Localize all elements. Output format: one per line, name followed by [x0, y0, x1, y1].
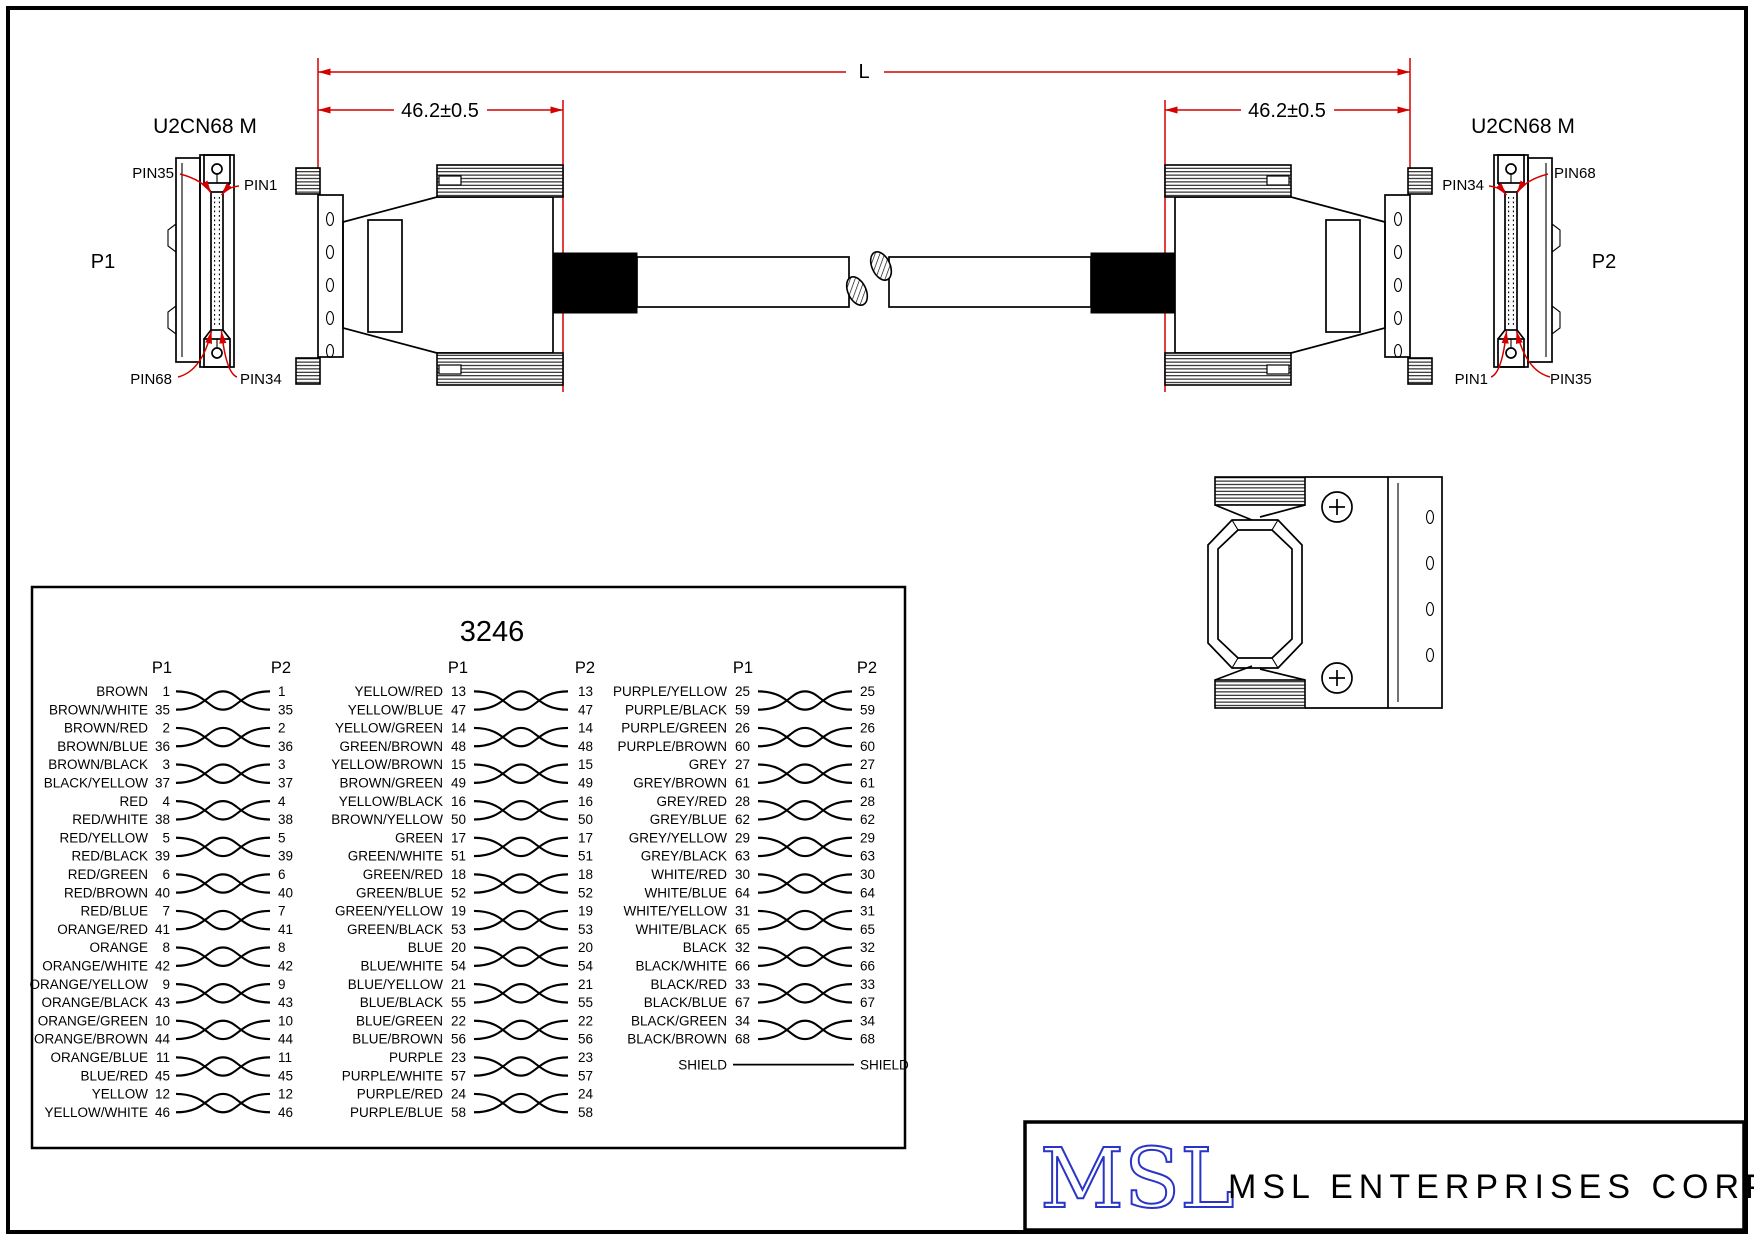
wire-pin-p2: 65	[860, 922, 875, 937]
twisted-pair-icon	[474, 801, 568, 819]
twisted-pair-icon	[176, 691, 270, 709]
wire-pin-p2: 47	[578, 702, 593, 717]
wire-pin-p1: 62	[735, 812, 750, 827]
dim-left-label: 46.2±0.5	[401, 100, 479, 122]
wire-pin-p1: 45	[155, 1068, 170, 1083]
connector-detail-view	[1208, 477, 1442, 708]
cable-break-icon	[867, 249, 896, 284]
wire-name: GREEN/WHITE	[348, 849, 443, 864]
wire-pin-p2: 41	[278, 922, 293, 937]
wire-name: YELLOW/BLACK	[339, 794, 443, 809]
wire-name: YELLOW/WHITE	[44, 1105, 148, 1120]
wire-name: BLACK	[683, 940, 727, 955]
wire-name: YELLOW/BROWN	[331, 757, 443, 772]
wire-pin-p1: 54	[451, 959, 467, 974]
wire-pin-p1: 17	[451, 830, 466, 845]
wire-name: RED/BLACK	[71, 849, 148, 864]
twisted-pair-icon	[758, 984, 852, 1002]
wire-pin-p1: 65	[735, 922, 750, 937]
wire-pin-p2: 25	[860, 684, 875, 699]
wire-name: GREEN/BROWN	[339, 739, 443, 754]
twisted-pair-icon	[758, 765, 852, 783]
wire-pin-p2: 35	[278, 702, 293, 717]
wire-pin-p2: 7	[278, 904, 286, 919]
wire-name: ORANGE/BROWN	[34, 1032, 148, 1047]
twisted-pair-icon	[176, 801, 270, 819]
wiring-table-title: 3246	[460, 616, 525, 648]
wire-pin-p2: 40	[278, 885, 293, 900]
schematic-canvas: L 46.2±0.5 46.2±0.5 U2CN68 M U2CN68 M P1…	[0, 0, 1754, 1240]
wire-pin-p1: 67	[735, 995, 750, 1010]
wire-rows: BROWN11BROWN/WHITE3535BROWN/RED22BROWN/B…	[29, 684, 909, 1120]
company-name: MSL ENTERPRISES CORP.	[1228, 1168, 1754, 1206]
wiring-table: 3246 P1 P2 P1 P2 P1 P2 BROWN11BROWN/WHIT…	[29, 587, 909, 1148]
wire-pin-p1: 50	[451, 812, 466, 827]
twisted-pair-icon	[474, 911, 568, 929]
wire-name: ORANGE	[89, 940, 148, 955]
wire-pin-p1: 59	[735, 702, 750, 717]
wire-pin-p1: 64	[735, 885, 751, 900]
dim-overall-label: L	[858, 61, 869, 83]
p2-pin-bottom-right: PIN35	[1550, 371, 1592, 388]
wire-pin-p2: 14	[578, 721, 594, 736]
wire-pin-p1: 18	[451, 867, 466, 882]
connector-model-left: U2CN68 M	[153, 115, 257, 138]
twisted-pair-icon	[758, 1021, 852, 1039]
wire-pin-p2: 46	[278, 1105, 293, 1120]
wire-pin-p2: 30	[860, 867, 875, 882]
wire-name: GREY/BLUE	[650, 812, 727, 827]
dimension-lines	[318, 58, 1410, 392]
shield-label-right: SHIELD	[860, 1057, 909, 1072]
wire-pin-p1: 4	[162, 794, 170, 809]
wire-pin-p2: 5	[278, 830, 286, 845]
wire-pin-p1: 2	[162, 721, 170, 736]
wire-pin-p2: 16	[578, 794, 593, 809]
wire-pin-p1: 14	[451, 721, 467, 736]
wire-pin-p1: 37	[155, 776, 170, 791]
wire-name: RED/YELLOW	[59, 830, 148, 845]
wire-pin-p2: 54	[578, 959, 594, 974]
wire-pin-p2: 55	[578, 995, 593, 1010]
wire-pin-p1: 22	[451, 1013, 466, 1028]
wire-pin-p1: 53	[451, 922, 466, 937]
wire-pin-p2: 21	[578, 977, 593, 992]
p2-pin-bottom-left: PIN1	[1455, 371, 1488, 388]
twisted-pair-icon	[758, 948, 852, 966]
wire-pin-p2: 23	[578, 1050, 593, 1065]
twisted-pair-icon	[176, 948, 270, 966]
wire-name: GREEN	[395, 830, 443, 845]
wire-pin-p1: 16	[451, 794, 466, 809]
wire-pin-p2: 67	[860, 995, 875, 1010]
wire-pin-p2: 33	[860, 977, 875, 992]
wire-pin-p2: 56	[578, 1032, 593, 1047]
wire-pin-p1: 42	[155, 959, 170, 974]
connector-model-right: U2CN68 M	[1471, 115, 1575, 138]
wire-name: GREY/BROWN	[633, 776, 727, 791]
wire-name: WHITE/YELLOW	[623, 904, 727, 919]
wire-name: GREEN/RED	[363, 867, 444, 882]
wire-pin-p1: 49	[451, 776, 466, 791]
wire-pin-p2: 1	[278, 684, 286, 699]
col-header-p1: P1	[733, 659, 753, 677]
title-block: MSL MSL ENTERPRISES CORP.	[1025, 1122, 1754, 1230]
wire-pin-p1: 55	[451, 995, 466, 1010]
wire-pin-p2: 8	[278, 940, 286, 955]
cable-break-icon	[843, 274, 872, 309]
wire-name: BROWN/RED	[64, 721, 148, 736]
drawing-sheet: L 46.2±0.5 46.2±0.5 U2CN68 M U2CN68 M P1…	[0, 0, 1754, 1240]
wire-name: RED/WHITE	[72, 812, 148, 827]
wire-pin-p2: 12	[278, 1087, 293, 1102]
wire-name: PURPLE/YELLOW	[613, 684, 727, 699]
twisted-pair-icon	[474, 1057, 568, 1075]
wire-pin-p1: 10	[155, 1013, 170, 1028]
wire-pin-p1: 1	[162, 684, 170, 699]
wire-name: BROWN/BLUE	[57, 739, 148, 754]
p1-end-view	[168, 155, 239, 377]
wire-pin-p1: 40	[155, 885, 170, 900]
wire-name: RED/GREEN	[68, 867, 148, 882]
twisted-pair-icon	[474, 874, 568, 892]
wire-name: BLUE/RED	[80, 1068, 148, 1083]
wire-name: PURPLE/BLACK	[625, 702, 727, 717]
wire-pin-p1: 20	[451, 940, 466, 955]
wire-pin-p2: 52	[578, 885, 593, 900]
p1-pin-bottom-right: PIN34	[240, 371, 282, 388]
wire-name: WHITE/BLUE	[644, 885, 727, 900]
wire-name: WHITE/BLACK	[635, 922, 727, 937]
wire-pin-p2: 43	[278, 995, 293, 1010]
twisted-pair-icon	[176, 1057, 270, 1075]
twisted-pair-icon	[758, 911, 852, 929]
twisted-pair-icon	[758, 874, 852, 892]
wire-name: PURPLE/GREEN	[621, 721, 727, 736]
wire-pin-p2: 22	[578, 1013, 593, 1028]
wire-pin-p1: 8	[162, 940, 170, 955]
wire-pin-p1: 12	[155, 1087, 170, 1102]
wire-name: RED	[119, 794, 148, 809]
wire-pin-p1: 26	[735, 721, 750, 736]
p1-side-view	[296, 165, 637, 385]
wire-pin-p2: 64	[860, 885, 876, 900]
wire-pin-p2: 10	[278, 1013, 293, 1028]
wire-name: BLACK/YELLOW	[44, 776, 149, 791]
wire-name: GREY	[689, 757, 727, 772]
twisted-pair-icon	[176, 874, 270, 892]
wire-pin-p2: 13	[578, 684, 593, 699]
wire-pin-p2: 59	[860, 702, 875, 717]
wire-pin-p2: 39	[278, 849, 293, 864]
twisted-pair-icon	[176, 1021, 270, 1039]
wire-pin-p1: 52	[451, 885, 466, 900]
twisted-pair-icon	[176, 911, 270, 929]
twisted-pair-icon	[176, 838, 270, 856]
wire-name: GREEN/YELLOW	[335, 904, 443, 919]
wire-name: GREY/BLACK	[641, 849, 727, 864]
wire-pin-p2: 34	[860, 1013, 876, 1028]
wire-pin-p2: 20	[578, 940, 593, 955]
wire-pin-p1: 39	[155, 849, 170, 864]
wire-pin-p2: 11	[278, 1050, 292, 1065]
p2-pin-top-right: PIN68	[1554, 165, 1596, 182]
p1-pin-bottom-left: PIN68	[130, 371, 172, 388]
wire-name: ORANGE/BLUE	[50, 1050, 148, 1065]
wire-pin-p2: 2	[278, 721, 286, 736]
wire-name: GREEN/BLUE	[356, 885, 443, 900]
wire-name: BROWN	[96, 684, 148, 699]
wire-pin-p1: 46	[155, 1105, 170, 1120]
wire-pin-p1: 57	[451, 1068, 466, 1083]
wire-pin-p2: 27	[860, 757, 875, 772]
wire-pin-p2: 53	[578, 922, 593, 937]
wire-pin-p2: 28	[860, 794, 875, 809]
wire-pin-p1: 21	[451, 977, 466, 992]
twisted-pair-icon	[176, 765, 270, 783]
wire-pin-p2: 19	[578, 904, 593, 919]
wire-pin-p2: 42	[278, 959, 293, 974]
twisted-pair-icon	[176, 984, 270, 1002]
wire-pin-p1: 43	[155, 995, 170, 1010]
wire-name: ORANGE/WHITE	[42, 959, 148, 974]
wire-pin-p2: 48	[578, 739, 593, 754]
wire-pin-p1: 9	[162, 977, 170, 992]
wire-pin-p1: 5	[162, 830, 170, 845]
col-header-p2: P2	[575, 659, 595, 677]
wire-pin-p2: 18	[578, 867, 593, 882]
wire-pin-p2: 9	[278, 977, 286, 992]
p2-pin-top-left: PIN34	[1442, 177, 1484, 194]
wire-name: PURPLE	[389, 1050, 443, 1065]
wire-name: BLUE/BROWN	[352, 1032, 443, 1047]
wire-name: BROWN/WHITE	[49, 702, 148, 717]
wire-name: GREY/RED	[656, 794, 727, 809]
wire-pin-p1: 48	[451, 739, 466, 754]
p1-pin-top-right: PIN1	[244, 177, 277, 194]
wire-name: ORANGE/BLACK	[41, 995, 148, 1010]
wire-name: GREEN/BLACK	[347, 922, 443, 937]
wire-pin-p1: 66	[735, 959, 750, 974]
wire-pin-p2: 17	[578, 830, 593, 845]
wire-name: GREY/YELLOW	[629, 830, 728, 845]
wire-pin-p1: 30	[735, 867, 750, 882]
wire-name: BLACK/WHITE	[635, 959, 727, 974]
wire-pin-p2: 58	[578, 1105, 593, 1120]
wire-pin-p1: 41	[155, 922, 170, 937]
wire-name: BLUE	[408, 940, 443, 955]
wire-pin-p2: 49	[578, 776, 593, 791]
wire-pin-p2: 24	[578, 1087, 594, 1102]
wire-pin-p1: 33	[735, 977, 750, 992]
wire-pin-p1: 19	[451, 904, 466, 919]
wire-pin-p1: 28	[735, 794, 750, 809]
twisted-pair-icon	[474, 1094, 568, 1112]
wire-name: WHITE/RED	[651, 867, 727, 882]
wire-pin-p1: 13	[451, 684, 466, 699]
col-header-p1: P1	[152, 659, 172, 677]
p1-label: P1	[91, 251, 115, 273]
wire-pin-p1: 24	[451, 1087, 467, 1102]
wire-pin-p1: 32	[735, 940, 750, 955]
wire-pin-p1: 63	[735, 849, 750, 864]
twisted-pair-icon	[758, 728, 852, 746]
wire-name: ORANGE/RED	[57, 922, 148, 937]
wire-pin-p2: 6	[278, 867, 286, 882]
wire-name: YELLOW/RED	[354, 684, 443, 699]
wire-name: PURPLE/RED	[357, 1087, 444, 1102]
col-header-p2: P2	[271, 659, 291, 677]
p1-pin-top-left: PIN35	[132, 165, 174, 182]
shield-label-left: SHIELD	[678, 1057, 727, 1072]
wire-pin-p2: 31	[860, 904, 875, 919]
p2-label: P2	[1592, 251, 1616, 273]
wire-name: YELLOW/BLUE	[348, 702, 443, 717]
wire-name: BLUE/GREEN	[356, 1013, 443, 1028]
twisted-pair-icon	[176, 728, 270, 746]
company-logo: MSL	[1040, 1132, 1235, 1227]
wire-pin-p2: 45	[278, 1068, 293, 1083]
twisted-pair-icon	[474, 728, 568, 746]
wire-name: BROWN/GREEN	[339, 776, 443, 791]
wire-name: BLUE/BLACK	[360, 995, 443, 1010]
wire-name: RED/BLUE	[80, 904, 148, 919]
wire-name: YELLOW	[92, 1087, 149, 1102]
wire-pin-p1: 3	[162, 757, 170, 772]
wire-name: YELLOW/GREEN	[335, 721, 443, 736]
wire-pin-p2: 62	[860, 812, 875, 827]
wire-pin-p1: 7	[162, 904, 170, 919]
wire-pin-p1: 35	[155, 702, 170, 717]
wire-name: BLACK/RED	[650, 977, 727, 992]
wire-pin-p2: 51	[578, 849, 593, 864]
twisted-pair-icon	[474, 765, 568, 783]
wire-name: BROWN/BLACK	[48, 757, 148, 772]
dim-right-label: 46.2±0.5	[1248, 100, 1326, 122]
wire-pin-p1: 27	[735, 757, 750, 772]
wire-pin-p1: 51	[451, 849, 466, 864]
wire-pin-p1: 15	[451, 757, 466, 772]
wire-pin-p2: 29	[860, 830, 875, 845]
wire-pin-p2: 32	[860, 940, 875, 955]
wire-name: BLACK/GREEN	[631, 1013, 727, 1028]
twisted-pair-icon	[176, 1094, 270, 1112]
wire-pin-p2: 26	[860, 721, 875, 736]
wire-name: BLACK/BLUE	[644, 995, 727, 1010]
wire-pin-p2: 36	[278, 739, 293, 754]
wire-pin-p1: 34	[735, 1013, 751, 1028]
wire-pin-p1: 38	[155, 812, 170, 827]
wire-name: BLUE/YELLOW	[348, 977, 444, 992]
wire-pin-p2: 4	[278, 794, 286, 809]
wire-name: PURPLE/BROWN	[617, 739, 727, 754]
wire-pin-p2: 60	[860, 739, 875, 754]
wire-name: ORANGE/YELLOW	[29, 977, 148, 992]
wire-pin-p1: 31	[735, 904, 750, 919]
wire-name: ORANGE/GREEN	[38, 1013, 148, 1028]
col-header-p2: P2	[857, 659, 877, 677]
wire-pin-p2: 38	[278, 812, 293, 827]
wire-pin-p1: 36	[155, 739, 170, 754]
twisted-pair-icon	[474, 984, 568, 1002]
wire-name: PURPLE/BLUE	[350, 1105, 443, 1120]
p2-views-mirrored	[1091, 155, 1560, 385]
wire-name: BLUE/WHITE	[360, 959, 443, 974]
twisted-pair-icon	[474, 691, 568, 709]
wire-pin-p1: 47	[451, 702, 466, 717]
wire-pin-p1: 44	[155, 1032, 171, 1047]
twisted-pair-icon	[474, 1021, 568, 1039]
wire-pin-p1: 56	[451, 1032, 466, 1047]
wire-pin-p1: 68	[735, 1032, 750, 1047]
wire-pin-p2: 68	[860, 1032, 875, 1047]
twisted-pair-icon	[474, 948, 568, 966]
wire-pin-p2: 66	[860, 959, 875, 974]
twisted-pair-icon	[758, 801, 852, 819]
wire-pin-p2: 63	[860, 849, 875, 864]
twisted-pair-icon	[758, 838, 852, 856]
wire-name: BLACK/BROWN	[627, 1032, 727, 1047]
wire-pin-p1: 29	[735, 830, 750, 845]
wire-pin-p2: 50	[578, 812, 593, 827]
cable	[637, 249, 1091, 309]
wire-pin-p2: 15	[578, 757, 593, 772]
wire-pin-p1: 11	[156, 1050, 170, 1065]
wire-pin-p1: 61	[735, 776, 750, 791]
wire-pin-p1: 58	[451, 1105, 466, 1120]
wire-name: RED/BROWN	[64, 885, 148, 900]
wire-pin-p2: 61	[860, 776, 875, 791]
wire-pin-p1: 23	[451, 1050, 466, 1065]
wire-pin-p2: 37	[278, 776, 293, 791]
wire-pin-p1: 25	[735, 684, 750, 699]
wire-pin-p2: 57	[578, 1068, 593, 1083]
wire-pin-p1: 6	[162, 867, 170, 882]
twisted-pair-icon	[758, 691, 852, 709]
wire-pin-p2: 3	[278, 757, 286, 772]
col-header-p1: P1	[448, 659, 468, 677]
wire-name: BROWN/YELLOW	[331, 812, 443, 827]
twisted-pair-icon	[474, 838, 568, 856]
wire-name: PURPLE/WHITE	[342, 1068, 443, 1083]
wire-pin-p1: 60	[735, 739, 750, 754]
wire-pin-p2: 44	[278, 1032, 294, 1047]
